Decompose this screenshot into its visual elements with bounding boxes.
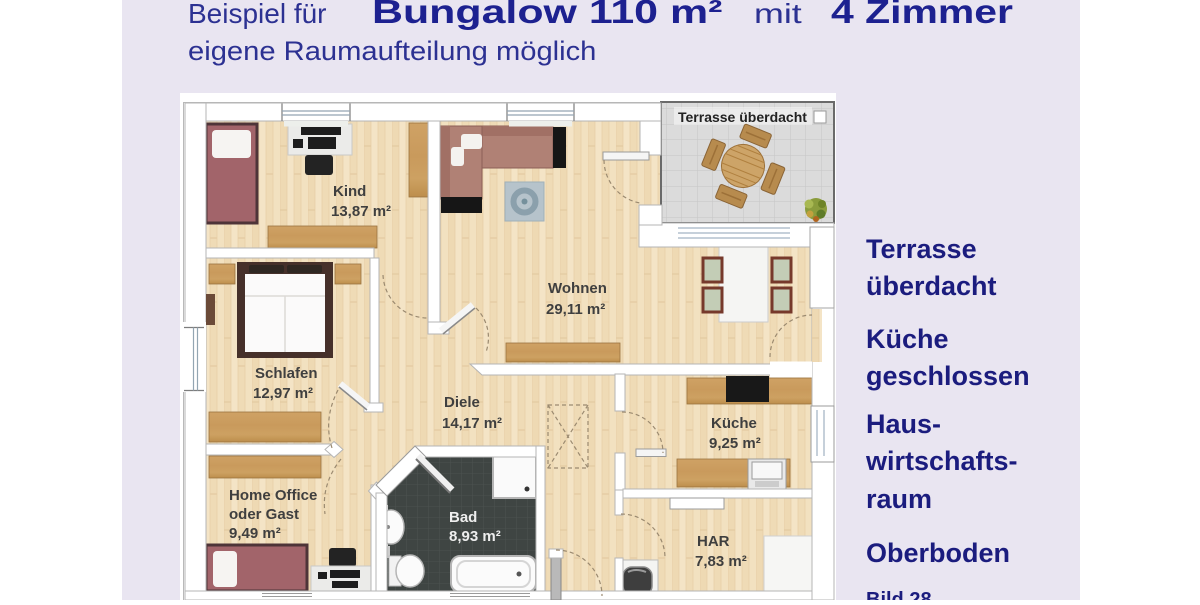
svg-text:Beispiel für: Beispiel für [188, 0, 327, 29]
svg-text:überdacht: überdacht [866, 271, 997, 301]
svg-text:Wohnen: Wohnen [548, 280, 607, 297]
svg-text:Diele: Diele [444, 394, 480, 411]
svg-text:9,49 m²: 9,49 m² [229, 525, 281, 542]
svg-text:8,93 m²: 8,93 m² [449, 528, 501, 545]
svg-text:14,17 m²: 14,17 m² [442, 415, 502, 432]
svg-text:eigene Raumaufteilung möglich: eigene Raumaufteilung möglich [188, 36, 596, 66]
svg-text:7,83 m²: 7,83 m² [695, 553, 747, 570]
svg-text:Haus-: Haus- [866, 409, 941, 439]
svg-text:raum: raum [866, 484, 932, 514]
svg-text:Schlafen: Schlafen [255, 365, 318, 382]
svg-text:29,11 m²: 29,11 m² [546, 301, 605, 318]
svg-text:Bad: Bad [449, 509, 477, 526]
svg-text:13,87 m²: 13,87 m² [331, 203, 391, 220]
svg-text:HAR: HAR [697, 533, 730, 550]
svg-text:Küche: Küche [711, 415, 757, 432]
svg-text:Kind: Kind [333, 183, 366, 200]
svg-text:Bild 28: Bild 28 [866, 589, 932, 600]
svg-text:Oberboden: Oberboden [866, 538, 1010, 568]
svg-text:Küche: Küche [866, 324, 949, 354]
svg-text:wirtschafts-: wirtschafts- [865, 446, 1018, 476]
svg-text:4 Zimmer: 4 Zimmer [831, 0, 1013, 30]
svg-text:Terrasse überdacht: Terrasse überdacht [678, 109, 807, 125]
svg-text:mit: mit [754, 0, 802, 29]
svg-text:9,25 m²: 9,25 m² [709, 435, 761, 452]
svg-text:Terrasse: Terrasse [866, 234, 977, 264]
svg-text:Home Office: Home Office [229, 487, 317, 504]
svg-text:12,97 m²: 12,97 m² [253, 385, 313, 402]
svg-text:Bungalow 110 m²: Bungalow 110 m² [372, 0, 722, 31]
svg-text:oder Gast: oder Gast [229, 506, 299, 523]
svg-text:geschlossen: geschlossen [866, 361, 1030, 391]
